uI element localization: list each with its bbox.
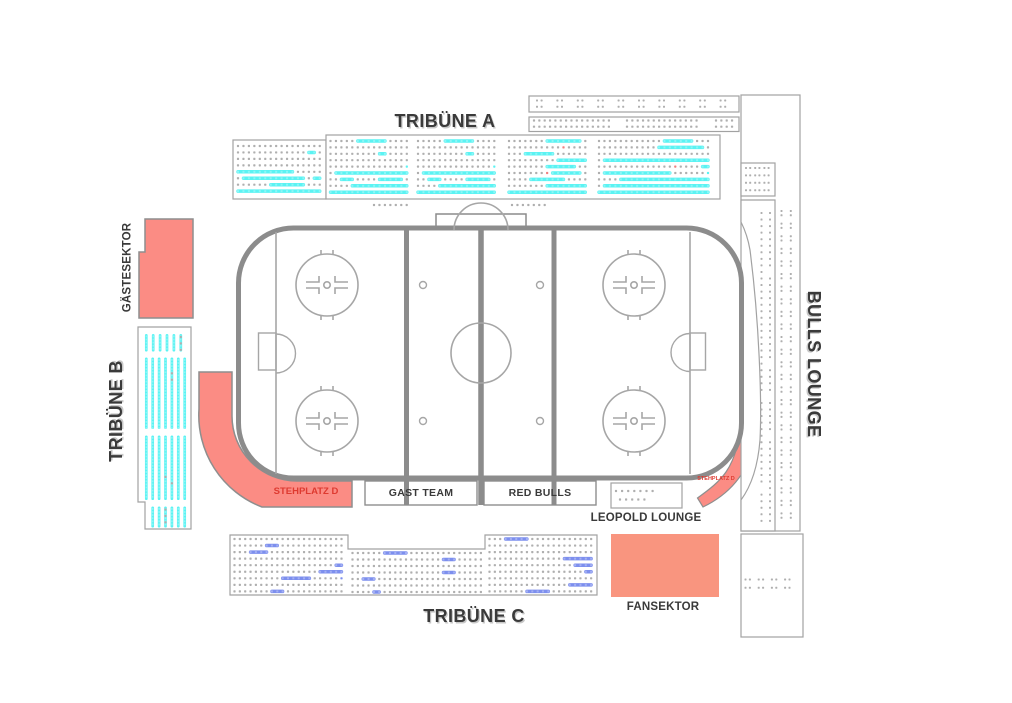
bulls-lounge-bottom-box[interactable] [741, 534, 803, 637]
arena-seating-map: TRIBÜNE A TRIBÜNE B TRIBÜNE C BULLS LOUN… [0, 0, 1012, 703]
leopold-lounge-box[interactable] [611, 483, 682, 508]
stehplatz-d-right-label: STEHPLATZ D [691, 475, 741, 483]
stehplatz-d-left-label: STEHPLATZ D [256, 486, 356, 498]
ice-rink [239, 203, 742, 478]
tribune-a-left-box[interactable] [233, 140, 326, 199]
leopold-lounge-label: LEOPOLD LOUNGE [586, 511, 706, 525]
gaestesektor-label: GÄSTESEKTOR [121, 208, 136, 328]
fansektor-area[interactable] [611, 534, 719, 597]
tribune-c-box[interactable] [230, 535, 597, 595]
fansektor-label: FANSEKTOR [613, 600, 713, 614]
arena-map-svg [0, 0, 1012, 703]
tribune-c-label: TRIBÜNE C [404, 605, 544, 627]
tribune-b-label: TRIBÜNE B [105, 336, 127, 486]
gaestesektor-area[interactable] [139, 219, 193, 318]
tribune-b-box[interactable] [138, 327, 191, 529]
red-bulls-label: RED BULLS [484, 487, 596, 500]
tribune-a-main-box[interactable] [326, 135, 720, 199]
tribune-a-label: TRIBÜNE A [375, 111, 515, 131]
bulls-lounge-label: BULLS LOUNGE [803, 279, 825, 449]
bulls-lounge-small-box[interactable] [741, 163, 775, 196]
top-strip-lower-box[interactable] [529, 117, 739, 132]
gast-team-label: GAST TEAM [365, 487, 477, 500]
top-strip-upper-box[interactable] [529, 96, 739, 112]
